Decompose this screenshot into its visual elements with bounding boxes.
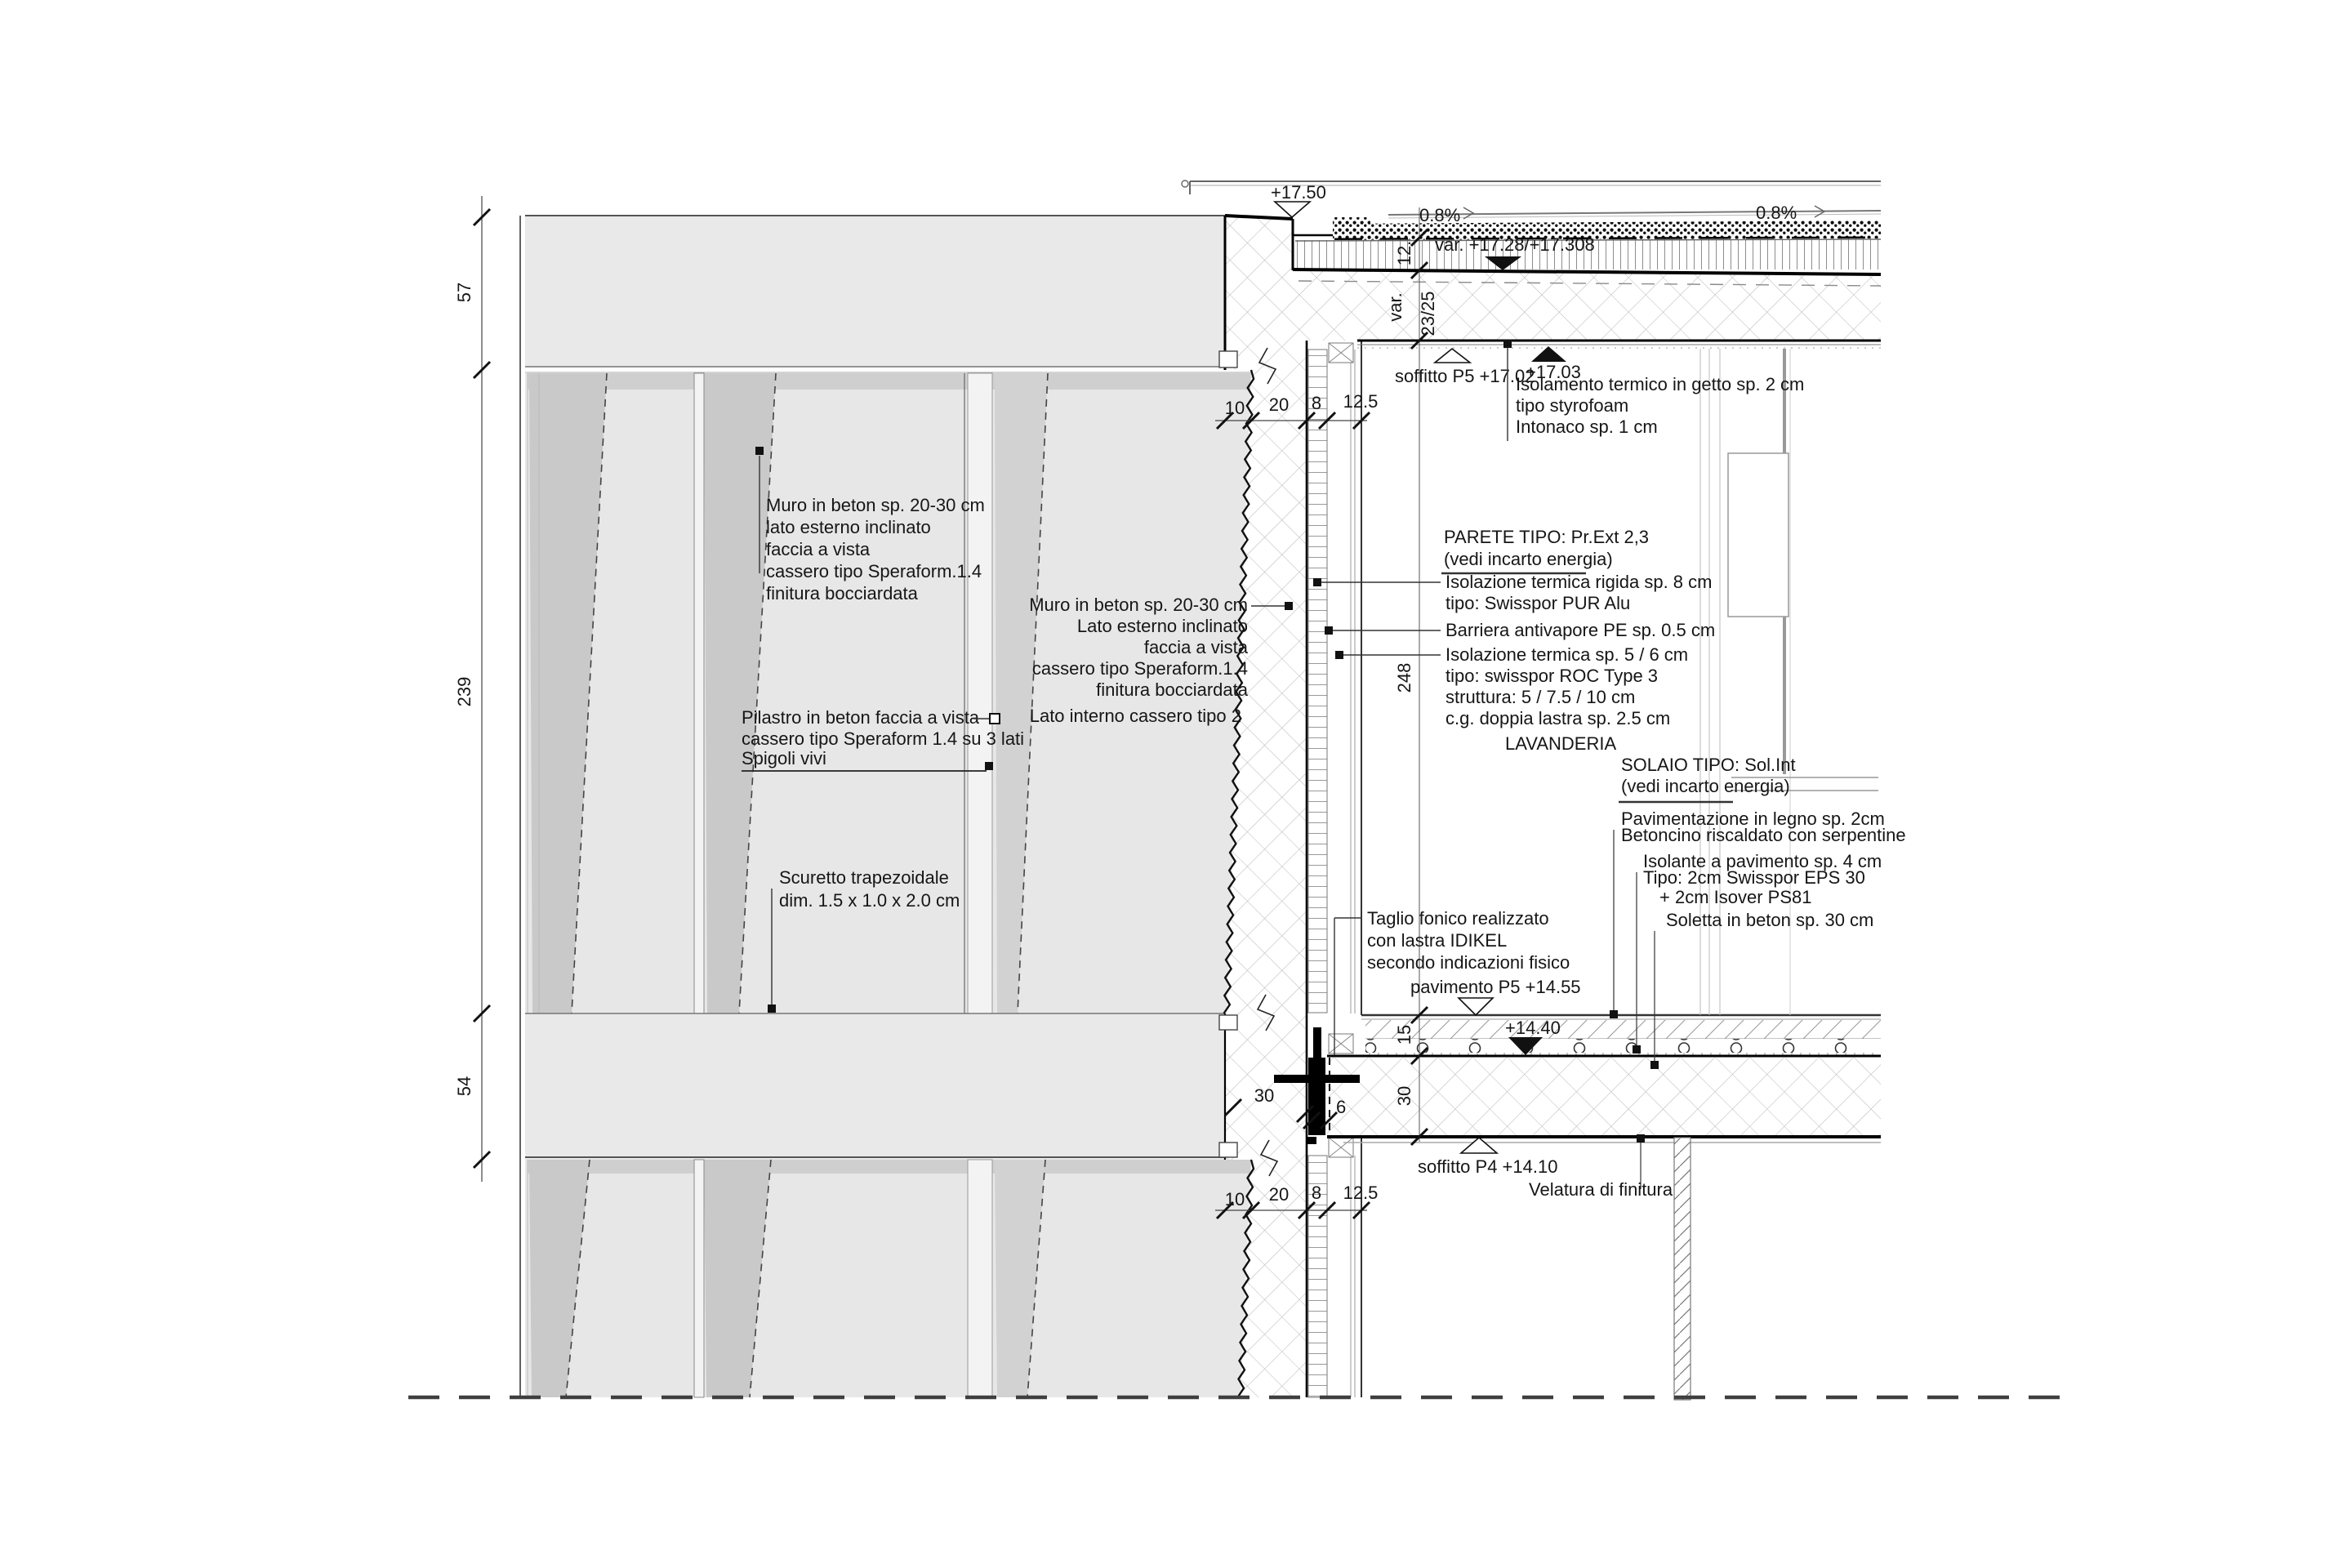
muro2-line3: faccia a vista	[1144, 637, 1249, 657]
level-var-label: var. +17.28/+17.308	[1435, 234, 1595, 255]
isolamento-line1: Isolamento termico in getto sp. 2 cm	[1516, 374, 1804, 394]
muro1-line3: faccia a vista	[766, 539, 871, 559]
level-1703-marker	[1531, 346, 1566, 362]
parete-i3-line1: Isolazione termica sp. 5 / 6 cm	[1445, 644, 1688, 665]
solaio-i2-line3: + 2cm Isover PS81	[1659, 887, 1811, 907]
muro2-line5: finitura bocciardata	[1096, 679, 1249, 700]
wall-niche	[1728, 453, 1788, 617]
pilastro-line2: cassero tipo Speraform 1.4 su 3 lati	[742, 728, 1024, 749]
muro2-line1: Muro in beton sp. 20-30 cm	[1029, 595, 1248, 615]
drawing-page: 57 239 54 12. var. 23/25 248 15 30 10 20…	[0, 0, 2352, 1568]
scuretto-notch-mid2	[1219, 1143, 1237, 1157]
dim-wall-30: 30	[1254, 1085, 1274, 1106]
slope-right-label: 0.8%	[1756, 203, 1797, 223]
dim-30v: 30	[1394, 1086, 1414, 1106]
soffitto-p4-marker	[1461, 1138, 1497, 1153]
pilaster-strip	[968, 373, 992, 1013]
serpentine-pipes	[1365, 1039, 1881, 1053]
solaio-i2-line2: Tipo: 2cm Swisspor EPS 30	[1643, 867, 1865, 888]
lato-interno-label: Lato interno cassero tipo 2	[1030, 706, 1241, 726]
soffitto-p5-marker	[1435, 349, 1470, 363]
taglio-line2: con lastra IDIKEL	[1367, 930, 1507, 951]
muro2-line4: cassero tipo Speraform.1.4	[1032, 658, 1248, 679]
pavimento-p5-marker	[1459, 998, 1493, 1015]
taglio-line3: secondo indicazioni fisico	[1367, 952, 1570, 973]
parete-i1-line1: Isolazione termica rigida sp. 8 cm	[1445, 572, 1712, 592]
pavimento-p5-label: pavimento P5 +14.55	[1410, 977, 1581, 997]
parete-i3-line3: struttura: 5 / 7.5 / 10 cm	[1445, 687, 1635, 707]
wall-lower-panels	[525, 1160, 1251, 1397]
betoncino-layer	[1365, 1020, 1881, 1039]
slope-left-label: 0.8%	[1419, 205, 1460, 225]
dim-239: 239	[454, 677, 474, 707]
pilastro-line3: Spigoli vivi	[742, 748, 826, 768]
rail-end-hook	[1182, 180, 1188, 187]
dim-var: var.	[1385, 292, 1405, 321]
architectural-section-drawing: 57 239 54 12. var. 23/25 248 15 30 10 20…	[0, 0, 2352, 1568]
dim-top-8: 8	[1312, 393, 1321, 413]
muro1-line4: cassero tipo Speraform.1.4	[766, 561, 982, 581]
dim-top-125: 12.5	[1343, 391, 1379, 412]
scuretto-line2: dim. 1.5 x 1.0 x 2.0 cm	[779, 890, 960, 911]
scuretto-notch-mid1	[1219, 1015, 1237, 1030]
velatura-label: Velatura di finitura	[1529, 1179, 1673, 1200]
soffitto-p4-label: soffitto P4 +14.10	[1418, 1156, 1557, 1177]
facade-elevation	[520, 216, 1251, 1397]
muro1-line1: Muro in beton sp. 20-30 cm	[766, 495, 985, 515]
solaio-i1-line2: Betoncino riscaldato con serpentine	[1621, 825, 1906, 845]
isolamento-line2: tipo styrofoam	[1516, 395, 1628, 416]
muro2-line2: Lato esterno inclinato	[1077, 616, 1248, 636]
parete-i3-line2: tipo: swisspor ROC Type 3	[1445, 666, 1658, 686]
band-middle	[525, 1013, 1225, 1160]
solaio-title: SOLAIO TIPO: Sol.Int	[1621, 755, 1796, 775]
wall-lower-shadow	[528, 1160, 1251, 1174]
floor-assembly	[1274, 1015, 1881, 1143]
roof-slab-concrete	[1293, 270, 1881, 341]
parete-i1-line2: tipo: Swisspor PUR Alu	[1445, 593, 1630, 613]
dim-bot-8: 8	[1312, 1183, 1321, 1203]
dim-bot-125: 12.5	[1343, 1183, 1379, 1203]
dim-top-20: 20	[1269, 394, 1289, 415]
soffitto-p5-label: soffitto P5 +17.02	[1395, 366, 1535, 386]
solaio-subtitle: (vedi incarto energia)	[1621, 776, 1790, 796]
lining-blocking-top	[1329, 343, 1353, 363]
level-1440-label: +14.40	[1505, 1018, 1561, 1038]
parete-subtitle: (vedi incarto energia)	[1444, 549, 1613, 569]
lining-insulation-upper	[1308, 350, 1327, 1013]
dim-bot-20: 20	[1269, 1184, 1289, 1205]
band-top	[525, 216, 1225, 367]
lining-blocking-below-slab	[1329, 1138, 1353, 1157]
parete-title: PARETE TIPO: Pr.Ext 2,3	[1444, 527, 1649, 547]
joint-strip-1	[694, 373, 704, 1013]
dim-2325: 23/25	[1418, 291, 1438, 336]
level-1750-marker	[1275, 202, 1310, 217]
dim-248: 248	[1394, 663, 1414, 693]
muro1-line2: lato esterno inclinato	[766, 517, 931, 537]
room-label: LAVANDERIA	[1505, 733, 1616, 754]
scuretto-line1: Scuretto trapezoidale	[779, 867, 949, 888]
dim-12: 12.	[1394, 241, 1414, 266]
scuretto-notch-top	[1219, 351, 1237, 367]
lining-blocking-floor	[1329, 1034, 1353, 1053]
muro1-line5: finitura bocciardata	[766, 583, 919, 604]
dim-54: 54	[454, 1076, 474, 1096]
joint-strip-1b	[694, 1160, 704, 1397]
parete-i3-line4: c.g. doppia lastra sp. 2.5 cm	[1445, 708, 1670, 728]
level-1750-label: +17.50	[1271, 182, 1326, 203]
wall-lining	[1307, 341, 1361, 1397]
dim-top-10: 10	[1225, 398, 1245, 418]
dim-57: 57	[454, 283, 474, 302]
dim-bot-10: 10	[1225, 1189, 1245, 1209]
lower-partition-cut	[1674, 1138, 1690, 1400]
dim-15: 15	[1394, 1025, 1414, 1045]
parete-i2-line1: Barriera antivapore PE sp. 0.5 cm	[1445, 620, 1715, 640]
dim-gap-6: 6	[1336, 1097, 1346, 1117]
wall-upper-shadow	[528, 373, 1251, 390]
solaio-i3-line1: Soletta in beton sp. 30 cm	[1666, 910, 1873, 930]
taglio-line1: Taglio fonico realizzato	[1367, 908, 1549, 929]
pilaster-strip-b	[968, 1160, 992, 1397]
pilastro-line1: Pilastro in beton faccia a vista	[742, 707, 980, 728]
isolamento-line3: Intonaco sp. 1 cm	[1516, 416, 1658, 437]
